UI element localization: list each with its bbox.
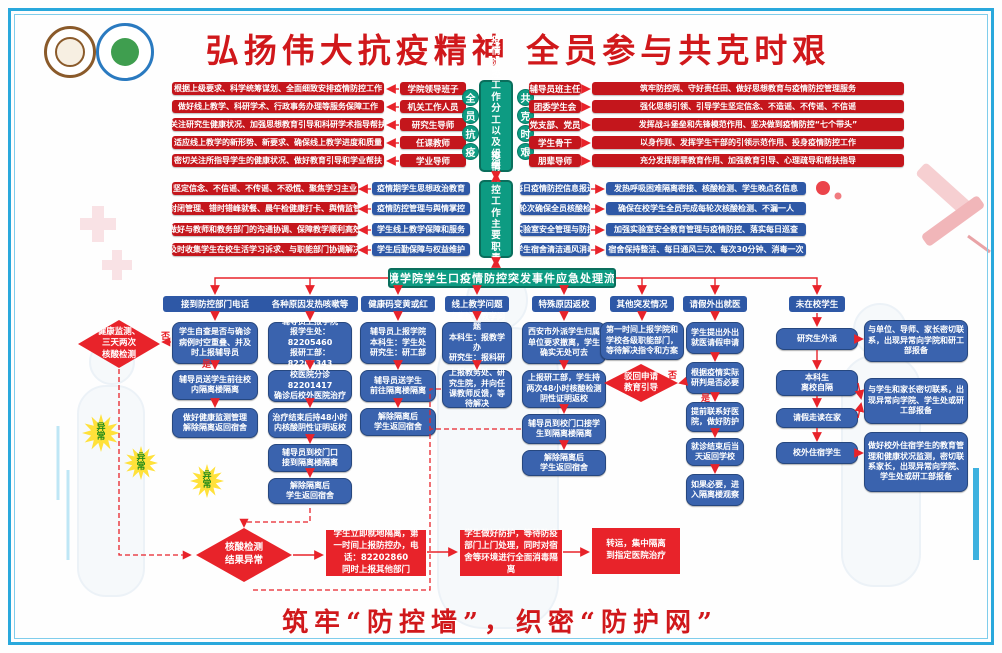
org-left-duty: 密切关注所指导学生的健康状况、做好教育引导和学业帮扶 (172, 154, 384, 167)
flow-step: 辅导员送学生前往校内隔离楼隔离 (172, 370, 258, 400)
flow-step: 治疗结束后持48小时内核酸阴性证明返校 (268, 408, 352, 438)
poster-title: 弘扬伟大抗疫精神 全员参与共克时艰 (158, 26, 878, 70)
org-left-role: 学业导师 (400, 154, 466, 167)
flow-step: 上报教务处、研究生院，并向任课教师反馈，等待解决 (442, 370, 512, 408)
syringe-icon (58, 426, 68, 560)
yes-label: 是 (202, 357, 211, 370)
virus-icon (835, 193, 842, 200)
flow-step: 校医院分诊82201417 确诊后校外医院治疗 (268, 370, 352, 402)
org-left-duty: 做好线上教学、科研学术、行政事务办理等服务保障工作 (172, 100, 384, 113)
flow-step: 学生自查是否与确诊病例时空重叠、并及时上报辅导员 (172, 322, 258, 364)
flow-step: 辅导员上报学院 报学生处：82205460 报研工部：82205343 (268, 322, 352, 364)
flow-header: 线上教学问题 (445, 296, 509, 312)
duty-right-label: 学生宿舍清洁通风消毒 (520, 243, 590, 256)
org-right-duty: 筑牢防控网、守好责任田、做好思想教育与疫情防控管理服务 (592, 82, 904, 95)
abnormal-star: 异 常 (82, 414, 120, 452)
abnormal-star: 异 常 (190, 464, 224, 498)
org-left-role: 任课教师 (400, 136, 466, 149)
org-left-role: 机关工作人员 (400, 100, 466, 113)
flow-step: 做好校外住宿学生的教育管理和健康状况监测，密切联系家长，出现异常向学院、学生处或… (864, 432, 968, 492)
org-left-duty: 关注研究生健康状况、加强思想教育引导和科研学术指导帮扶 (172, 118, 384, 131)
syringe-icon (915, 162, 990, 252)
flow-step: 提前联系好医院，做好防护 (686, 402, 744, 432)
duty-left-label: 学生线上教学保障和服务 (372, 223, 470, 236)
org-right-duty: 以身作则、发挥学生干部的引领示范作用、投身疫情防控工作 (592, 136, 904, 149)
flow-step: 根据疫情实际研判是否必要 (686, 362, 744, 394)
university-logo-inner (55, 37, 85, 67)
flow-step: 做好健康监测管理 解除隔离返回宿舍 (172, 408, 258, 438)
org-left-duty: 根据上级要求、科学统筹谋划、全面细致安排疫情防控工作 (172, 82, 384, 95)
org-right-duty: 强化思想引领、引导学生坚定信念、不造谣、不传谣、不信谣 (592, 100, 904, 113)
alert-step: 学生立即就地隔离，第一时间上报防控办，电话：82202860 同时上报其他部门 (326, 530, 426, 576)
flow-step: 辅导员上报学院 本科生：学生处 研究生：研工部 (360, 322, 436, 364)
org-right-duty: 发挥战斗堡垒和先锋模范作用、坚决做到疫情防控“七个带头” (592, 118, 904, 131)
flow-step: 请假走读在家 (776, 408, 858, 428)
medical-cross-icon (80, 206, 132, 280)
duty-right-label: 实验室安全管理与防控 (520, 223, 590, 236)
flow-step: 与单位、导师、家长密切联系，出现异常向学院和研工部报备 (864, 320, 968, 362)
flow-step: 收集线上教学问题 本科生：报教学办 研究生：报科研办 (442, 322, 512, 364)
duty-right-detail: 宿舍保持整洁、每日通风三次、每次30分钟、消毒一次 (606, 243, 806, 256)
duty-left-detail: 坚定信念、不信谣、不传谣、不恐慌、聚焦学习主业 (172, 182, 358, 195)
poster: 弘扬伟大抗疫精神 全员参与共克时艰 根据上级要求、科学统筹谋划、全面细致安排疫情… (0, 0, 1002, 653)
college-logo-leaf-icon (111, 38, 139, 66)
flow-step: 辅导员送学生 前往隔离楼隔离 (360, 370, 436, 402)
motto-circle: 全 (462, 89, 479, 106)
org-right-duty: 充分发挥朋辈教育作用、加强教育引导、心理疏导和帮扶指导 (592, 154, 904, 167)
health-monitor-diamond: 健康监测、 三天两次 核酸检测 (78, 320, 160, 368)
flow-step: 西安市外派学生归属单位要求撤离，学生确实无处可去 (522, 322, 606, 364)
college-logo (96, 23, 154, 81)
no-label: 否 (161, 329, 170, 342)
duty-right-label: 每轮次确保全员核酸检测 (520, 202, 590, 215)
flow-step: 与学生和家长密切联系，出现异常向学院、学生处或研工部报备 (864, 378, 968, 424)
flow-step: 辅导员到校门口接学生到隔离楼隔离 (522, 414, 606, 444)
duty-right-detail: 确保在校学生全员完成每轮次核酸检测、不漏一人 (606, 202, 806, 215)
flow-step: 辅导员到校门口 接到隔离楼隔离 (268, 444, 352, 472)
flow-header: 未在校学生 (789, 296, 845, 312)
flow-header: 健康码变黄或红 (361, 296, 435, 312)
duty-left-label: 疫情防控管理与舆情掌控 (372, 202, 470, 215)
yes-label: 是 (701, 391, 710, 404)
abnormal-result-diamond: 核酸检测 结果异常 (196, 528, 292, 582)
motto-circle: 抗 (462, 125, 479, 142)
abnormal-star: 异 常 (124, 446, 158, 480)
motto-circle: 员 (462, 107, 479, 124)
org-right-role: 党支部、党员 (529, 118, 581, 131)
thermometer-icon (973, 468, 979, 560)
org-right-role: 团委学生会 (529, 100, 581, 113)
process-banner: 环境学院学生口疫情防控突发事件应急处理流程 (388, 268, 616, 288)
org-left-role: 研究生导师 (400, 118, 466, 131)
duty-left-label: 疫情期学生思想政治教育 (372, 182, 470, 195)
org-left-role: 学院领导班子 (400, 82, 466, 95)
flow-step: 校外住宿学生 (776, 442, 858, 464)
flow-step: 如果必要，进入隔离楼观察 (686, 474, 744, 506)
flow-step: 第一时间上报学院和学校各级职能部门，等待解决指令和方案 (600, 322, 684, 360)
no-label: 否 (668, 368, 677, 381)
flow-header: 各种原因发热咳嗽等 (262, 296, 358, 312)
duty-left-detail: 封闭管理、错时错峰就餐、晨午检健康打卡、舆情监管 (172, 202, 358, 215)
flow-step: 本科生 离校自隔 (776, 370, 858, 396)
flow-step: 学生提出外出就医请假申请 (686, 322, 744, 354)
duty-right-label: 每日疫情防控信息报送 (520, 182, 590, 195)
flow-step: 解除隔离后 学生返回宿舍 (360, 408, 436, 436)
flow-step: 研究生外派 (776, 328, 858, 350)
flow-header: 接到防控部门电话 (163, 296, 267, 312)
flow-header: 特殊原因返校 (532, 296, 596, 312)
org-left-duty: 适应线上教学的新形势、新要求、确保线上教学进度和质量 (172, 136, 384, 149)
org-right-role: 学生骨干 (529, 136, 581, 149)
duty-system-title: 疫情防控工作主要职责任务 (479, 180, 513, 258)
flow-header: 其他突发情况 (610, 296, 674, 312)
alert-step: 学生做好防护，等待防疫部门上门处理，同时对宿舍等环境进行全面消毒隔离 (460, 530, 562, 576)
alert-step: 转运，集中隔离 到指定医院治疗 (592, 528, 680, 574)
university-logo (44, 26, 96, 78)
footer-slogan: 筑牢“防控墙”，织密“防护网” (200, 600, 800, 640)
motto-circle: 疫 (462, 143, 479, 160)
flow-step: 解除隔离后 学生返回宿舍 (522, 450, 606, 476)
duty-right-detail: 发热呼吸困难隔离密接、核酸检测、学生晚点名信息 (606, 182, 806, 195)
flow-step: 就诊结束后当天返回学校 (686, 438, 744, 466)
flow-step: 上报研工部，学生持两次48小时核酸检测阴性证明返校 (522, 370, 606, 408)
flow-step: 解除隔离后 学生返回宿舍 (268, 478, 352, 504)
duty-left-detail: 及时收集学生在校生活学习诉求、与职能部门协调解决 (172, 243, 358, 256)
flow-header: 请假外出就医 (683, 296, 747, 312)
duty-left-detail: 做好与教师和教务部门的沟通协调、保障教学顺利高效 (172, 223, 358, 236)
reject-diamond: 驳回申请 教育引导 (604, 364, 678, 402)
duty-left-label: 学生后勤保障与权益维护 (372, 243, 470, 256)
org-right-role: 朋辈导师 (529, 154, 581, 167)
virus-icon (816, 181, 830, 195)
org-right-role: 辅导员班主任 (529, 82, 581, 95)
duty-right-detail: 加强实验室安全教育管理与疫情防控、落实每日巡查 (606, 223, 806, 236)
